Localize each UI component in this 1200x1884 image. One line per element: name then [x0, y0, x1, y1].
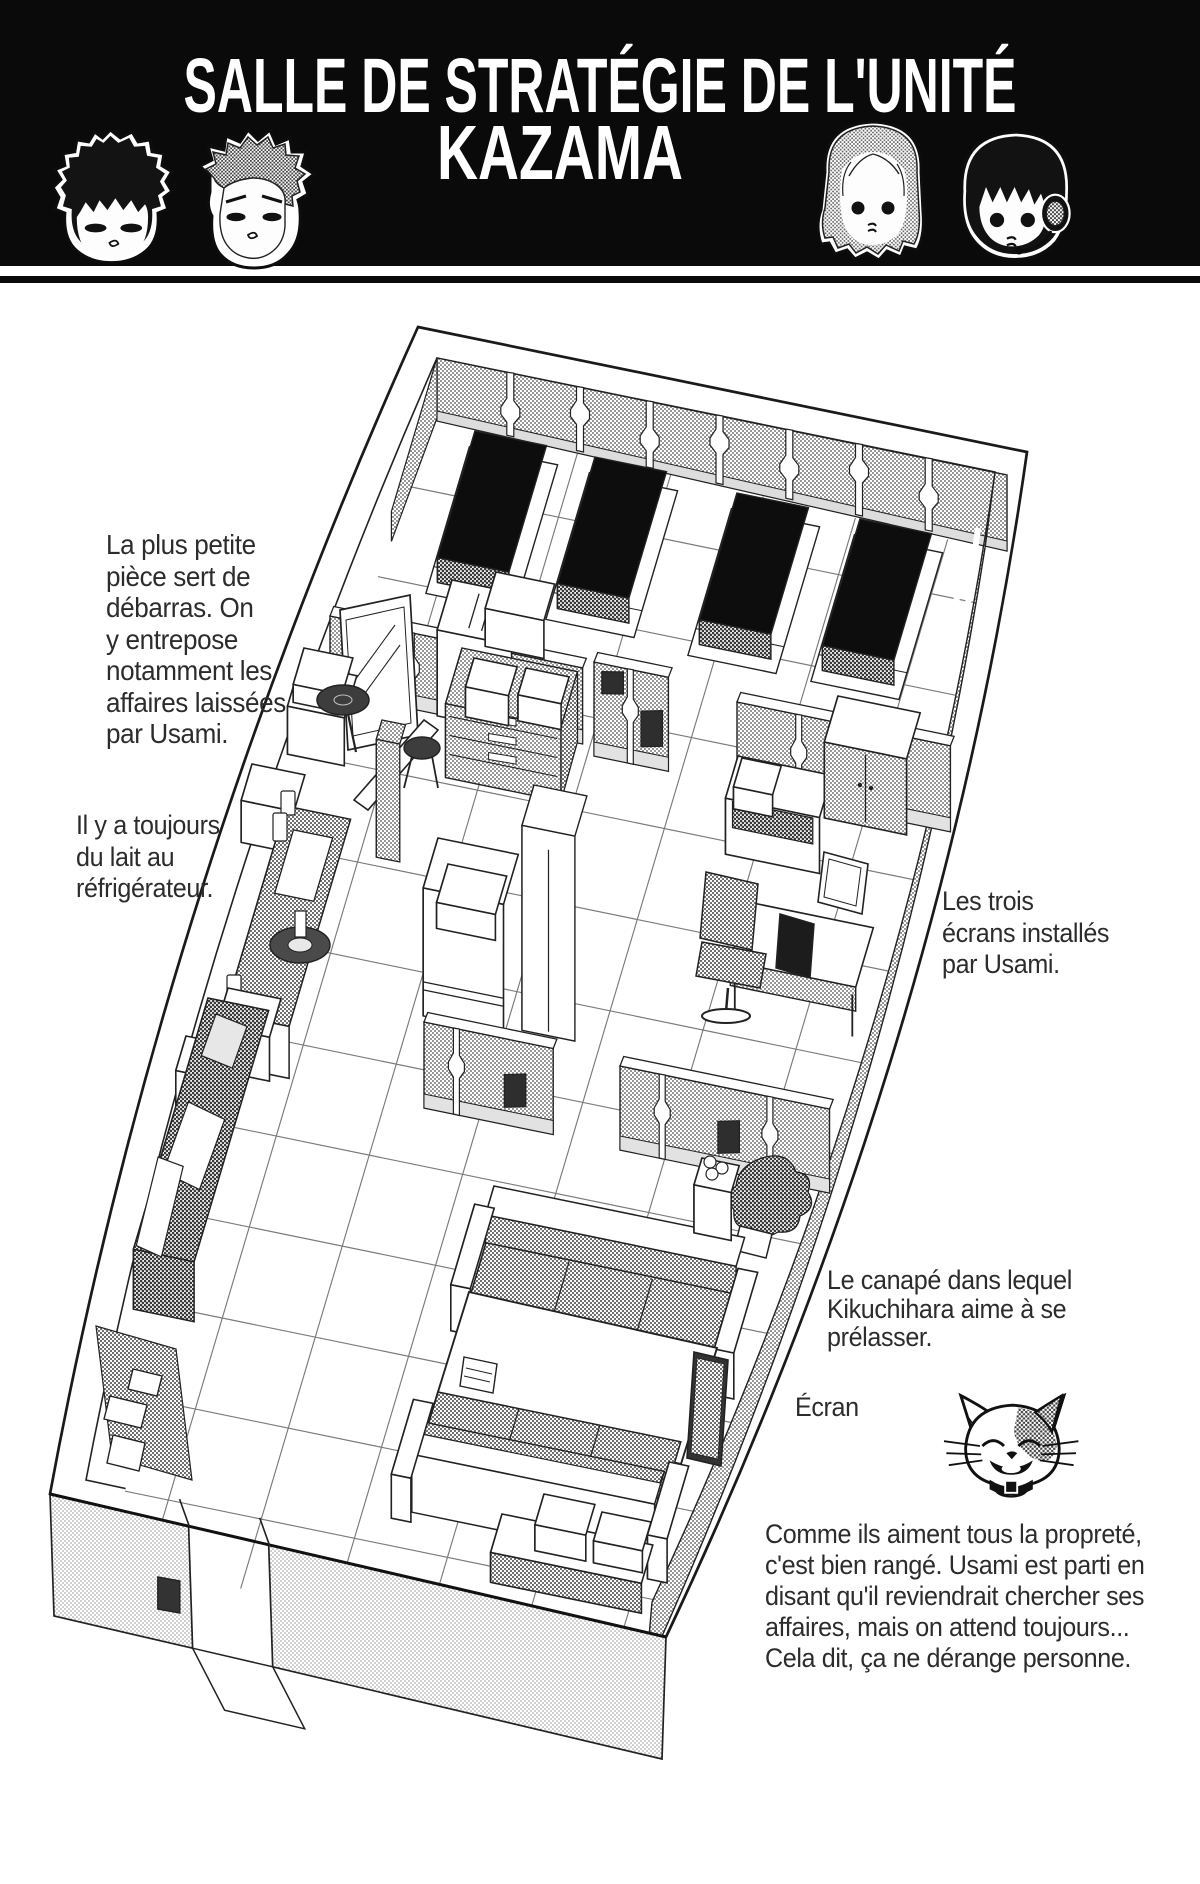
- svg-text:KAZAMA: KAZAMA: [437, 110, 683, 196]
